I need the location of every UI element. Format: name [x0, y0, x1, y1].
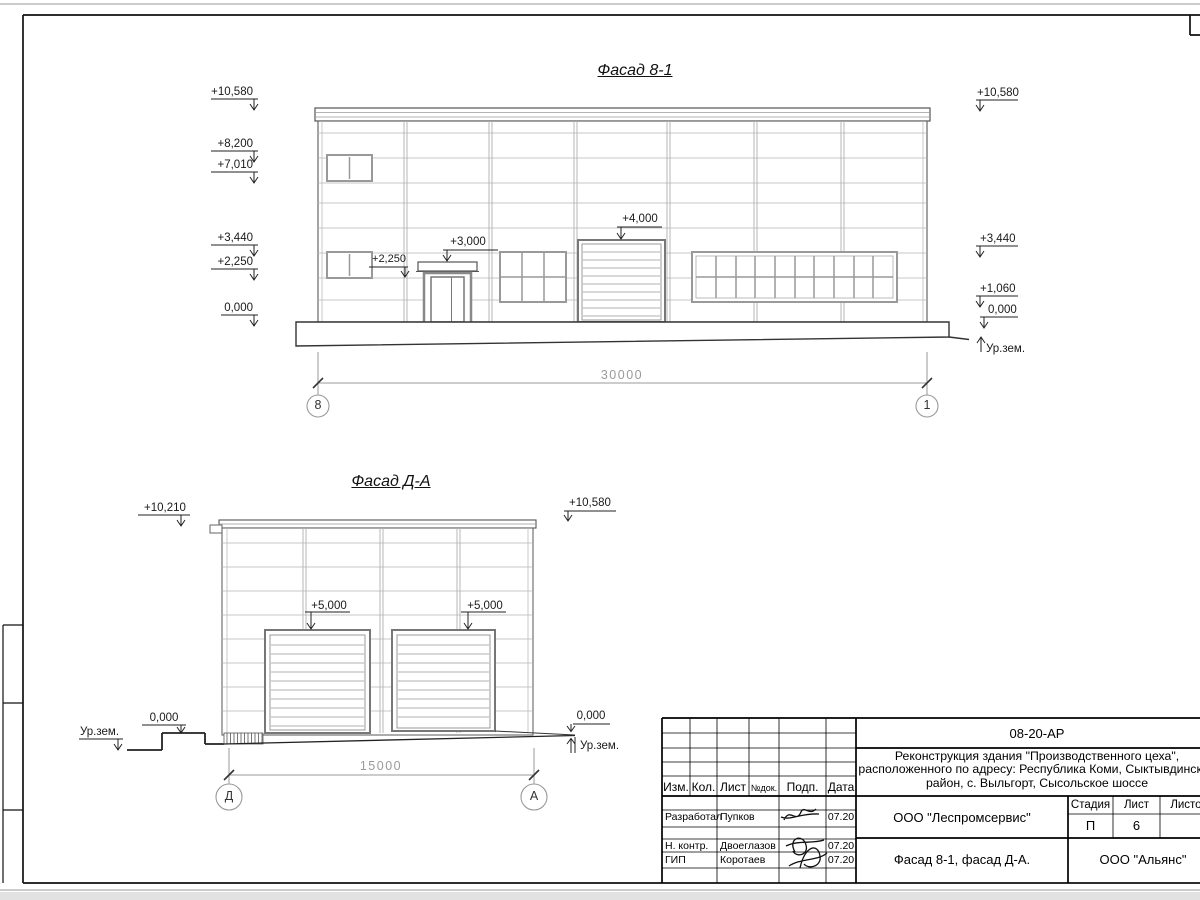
- ground-level-label: Ур.зем.: [580, 740, 619, 753]
- titleblock-doc-number: 08-20-АР: [856, 727, 1200, 741]
- titleblock-sheet-title: Фасад 8-1, фасад Д-А.: [856, 853, 1068, 867]
- elevation-mark: +3,440: [980, 233, 1016, 246]
- axis-bubble-a: А: [523, 790, 545, 804]
- elevation-mark: +2,250: [368, 253, 410, 265]
- dimension-label: 15000: [331, 760, 431, 774]
- elevation-mark: +2,250: [211, 256, 253, 269]
- titleblock-role: Разработал: [665, 812, 722, 824]
- titleblock-sheet-label: Лист: [1113, 799, 1160, 812]
- titleblock-date: 07.20: [826, 812, 856, 824]
- titleblock-col-data: Дата: [826, 781, 856, 794]
- elevation-mark: +5,000: [306, 600, 352, 613]
- ground-level-label: Ур.зем.: [80, 726, 119, 739]
- elevation-mark: 0,000: [141, 712, 187, 725]
- elevation-mark: +10,580: [977, 87, 1019, 100]
- dimension-label: 30000: [572, 369, 672, 383]
- titleblock-col-ndoc: №док.: [749, 784, 779, 794]
- signature-dvoeglazov-korotaev: [786, 838, 827, 868]
- titleblock-col-list: Лист: [717, 781, 749, 794]
- titleblock-sheet-value: 6: [1113, 819, 1160, 833]
- axis-bubble-1: 1: [916, 399, 938, 413]
- drawing-sheet: Фасад 8-1 Фасад Д-А +10,580 +8,200 +7,01…: [0, 0, 1200, 900]
- titleblock-date: 07.20: [826, 841, 856, 853]
- ground-level-label: Ур.зем.: [986, 343, 1025, 356]
- elevation-mark: +3,440: [211, 232, 253, 245]
- facade-2-title: Фасад Д-А: [329, 473, 453, 491]
- titleblock-name: Коротаев: [720, 855, 765, 867]
- titleblock-customer: ООО "Альянс": [1068, 853, 1200, 867]
- axis-bubble-d: Д: [218, 790, 240, 804]
- titleblock-sheets-label: Листов: [1160, 799, 1200, 812]
- titleblock-name: Пупков: [720, 812, 755, 824]
- elevation-mark: +5,000: [462, 600, 508, 613]
- titleblock-org: ООО "Леспромсервис": [856, 811, 1068, 825]
- titleblock-col-kol: Кол.: [690, 781, 717, 794]
- elevation-mark: +8,200: [211, 138, 253, 151]
- elevation-mark: +7,010: [211, 159, 253, 172]
- titleblock-col-izm: Изм.: [662, 781, 690, 794]
- elevation-mark: 0,000: [571, 710, 611, 723]
- titleblock-stage-value: П: [1068, 819, 1113, 833]
- titleblock-role: ГИП: [665, 855, 686, 867]
- titleblock-date: 07.20: [826, 855, 856, 867]
- elevation-mark: 0,000: [988, 304, 1017, 317]
- elevation-mark: +10,580: [211, 86, 253, 99]
- elevation-mark: 0,000: [211, 302, 253, 315]
- signature-pupkov: [781, 809, 819, 820]
- titleblock-col-podp: Подп.: [779, 781, 826, 794]
- elevation-mark: +3,000: [443, 236, 493, 249]
- axis-bubble-8: 8: [307, 399, 329, 413]
- titleblock-name: Двоеглазов: [720, 841, 776, 853]
- elevation-mark: +10,580: [563, 497, 617, 510]
- titleblock-stage-label: Стадия: [1068, 799, 1113, 812]
- facade-1-title: Фасад 8-1: [573, 62, 697, 80]
- titleblock-project-line2: расположенного по адресу: Республика Ком…: [856, 763, 1200, 777]
- elevation-mark: +1,060: [980, 283, 1016, 296]
- titleblock-project-line3: район, с. Выльгорт, Сысольское шоссе: [856, 777, 1200, 791]
- titleblock-role: Н. контр.: [665, 841, 708, 853]
- elevation-mark: +10,210: [138, 502, 192, 515]
- elevation-mark: +4,000: [615, 213, 665, 226]
